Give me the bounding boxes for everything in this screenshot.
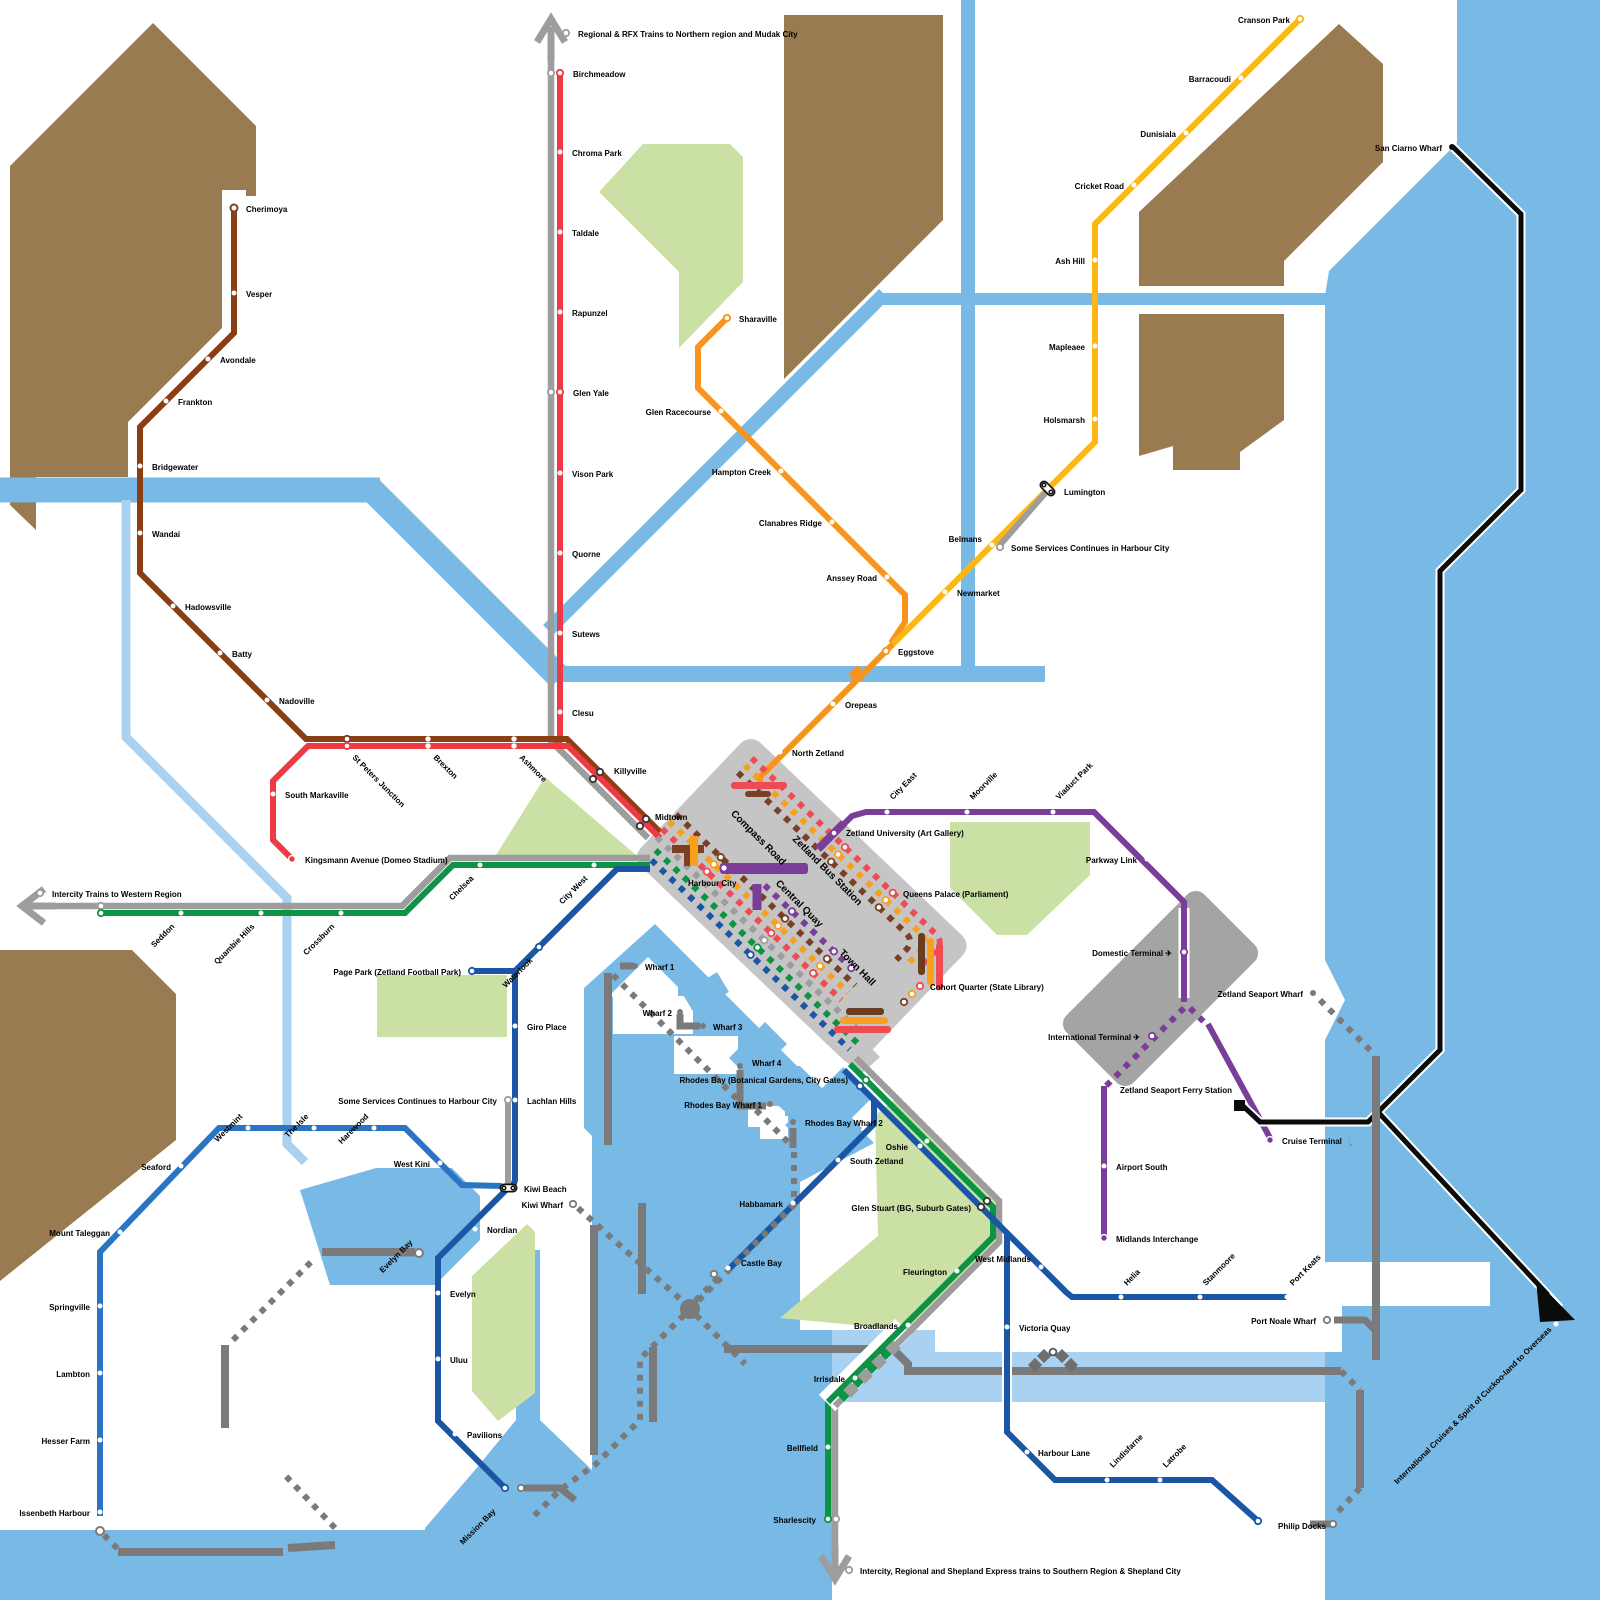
svg-text:Oshie: Oshie: [886, 1143, 909, 1152]
svg-text:Chroma Park: Chroma Park: [572, 149, 622, 158]
svg-text:Philip Docks: Philip Docks: [1278, 1522, 1327, 1531]
svg-text:Rapunzel: Rapunzel: [572, 309, 608, 318]
svg-text:Belmans: Belmans: [949, 535, 983, 544]
svg-text:Cruise Terminal ⚓: Cruise Terminal ⚓: [1282, 1136, 1354, 1146]
svg-text:Eggstove: Eggstove: [898, 648, 935, 657]
svg-text:Issenbeth Harbour: Issenbeth Harbour: [19, 1509, 90, 1518]
svg-text:Regional & RFX Trains to North: Regional & RFX Trains to Northern region…: [578, 30, 798, 39]
svg-text:Taldale: Taldale: [572, 229, 600, 238]
svg-text:Mapleaee: Mapleaee: [1049, 343, 1086, 352]
svg-text:West Kini: West Kini: [394, 1160, 430, 1169]
svg-text:Parkway Link: Parkway Link: [1086, 856, 1138, 865]
svg-text:Anssey Road: Anssey Road: [826, 574, 877, 583]
svg-text:Lumington: Lumington: [1064, 488, 1105, 497]
svg-text:Wharf 4: Wharf 4: [752, 1059, 782, 1068]
svg-text:Evelyn: Evelyn: [450, 1290, 476, 1299]
svg-text:Intercity, Regional and Shepla: Intercity, Regional and Shepland Express…: [860, 1567, 1181, 1576]
svg-text:Wharf 2: Wharf 2: [643, 1009, 673, 1018]
svg-text:Page Park (Zetland Football Pa: Page Park (Zetland Football Park): [333, 968, 461, 977]
svg-text:Wharf 3: Wharf 3: [713, 1023, 743, 1032]
svg-text:Kingsmann Avenue (Domeo Stadiu: Kingsmann Avenue (Domeo Stadium): [305, 856, 448, 865]
svg-text:Zetland Seaport Ferry Station: Zetland Seaport Ferry Station: [1120, 1086, 1232, 1095]
svg-text:Seaford: Seaford: [141, 1163, 171, 1172]
svg-text:Midlands Interchange: Midlands Interchange: [1116, 1235, 1199, 1244]
svg-text:San Ciarno Wharf: San Ciarno Wharf: [1375, 144, 1442, 153]
svg-text:Airport South: Airport South: [1116, 1163, 1168, 1172]
svg-text:Sharlescity: Sharlescity: [773, 1516, 816, 1525]
svg-text:Sutews: Sutews: [572, 630, 601, 639]
svg-text:Holsmarsh: Holsmarsh: [1044, 416, 1085, 425]
svg-text:International Terminal ✈: International Terminal ✈: [1048, 1033, 1140, 1042]
svg-text:Giro Place: Giro Place: [527, 1023, 567, 1032]
svg-text:Hadowsville: Hadowsville: [185, 603, 232, 612]
svg-text:Barracoudi: Barracoudi: [1189, 75, 1231, 84]
svg-text:Queens Palace (Parliament): Queens Palace (Parliament): [903, 890, 1009, 899]
svg-text:Wandai: Wandai: [152, 530, 180, 539]
svg-text:West Midlands: West Midlands: [975, 1255, 1031, 1264]
svg-text:Uluu: Uluu: [450, 1356, 468, 1365]
svg-text:South Markaville: South Markaville: [285, 791, 349, 800]
svg-text:Habbamark: Habbamark: [739, 1200, 783, 1209]
svg-text:Vison Park: Vison Park: [572, 470, 614, 479]
svg-text:Kiwi Beach: Kiwi Beach: [524, 1185, 567, 1194]
svg-text:Midtown: Midtown: [655, 813, 688, 822]
svg-text:Orepeas: Orepeas: [845, 701, 878, 710]
svg-text:Some Services Continues in Har: Some Services Continues in Harbour City: [1011, 544, 1170, 553]
svg-text:Clesu: Clesu: [572, 709, 594, 718]
svg-text:Quorne: Quorne: [572, 550, 601, 559]
svg-text:Lachlan Hills: Lachlan Hills: [527, 1097, 577, 1106]
svg-text:Cranson Park: Cranson Park: [1238, 16, 1291, 25]
svg-text:Rhodes Bay (Botanical Gardens,: Rhodes Bay (Botanical Gardens, City Gate…: [680, 1076, 849, 1085]
svg-text:Glen Stuart (BG, Suburb Gates): Glen Stuart (BG, Suburb Gates): [851, 1204, 971, 1213]
svg-text:South Zetland: South Zetland: [850, 1157, 903, 1166]
svg-text:Newmarket: Newmarket: [957, 589, 1000, 598]
svg-text:Broadlands: Broadlands: [854, 1322, 899, 1331]
svg-text:Vesper: Vesper: [246, 290, 272, 299]
svg-text:Glen Racecourse: Glen Racecourse: [646, 408, 712, 417]
svg-text:Killyville: Killyville: [614, 767, 647, 776]
svg-text:Harbour City: Harbour City: [688, 879, 737, 888]
svg-text:Harbour Lane: Harbour Lane: [1038, 1449, 1091, 1458]
svg-text:Irrisdale: Irrisdale: [814, 1375, 846, 1384]
svg-text:Dunisiala: Dunisiala: [1140, 130, 1176, 139]
svg-text:Hesser Farm: Hesser Farm: [42, 1437, 90, 1446]
svg-text:Victoria Quay: Victoria Quay: [1019, 1324, 1071, 1333]
svg-text:Pavilions: Pavilions: [467, 1431, 503, 1440]
svg-text:Rhodes Bay Wharf 1: Rhodes Bay Wharf 1: [684, 1101, 762, 1110]
svg-text:Clanabres Ridge: Clanabres Ridge: [759, 519, 823, 528]
svg-text:Cricket Road: Cricket Road: [1075, 182, 1124, 191]
svg-text:Castle Bay: Castle Bay: [741, 1259, 782, 1268]
svg-text:Fleurington: Fleurington: [903, 1268, 947, 1277]
svg-text:Intercity Trains to Western Re: Intercity Trains to Western Region: [52, 890, 182, 899]
svg-text:Avondale: Avondale: [220, 356, 256, 365]
svg-text:Zetland Seaport Wharf: Zetland Seaport Wharf: [1218, 990, 1304, 999]
svg-text:Domestic Terminal ✈: Domestic Terminal ✈: [1092, 949, 1172, 958]
svg-text:Glen Yale: Glen Yale: [573, 389, 609, 398]
svg-text:Nadoville: Nadoville: [279, 697, 315, 706]
svg-text:Cherimoya: Cherimoya: [246, 205, 288, 214]
svg-text:Sharaville: Sharaville: [739, 315, 777, 324]
svg-text:Hampton Creek: Hampton Creek: [712, 468, 772, 477]
svg-text:Birchmeadow: Birchmeadow: [573, 70, 626, 79]
svg-text:Batty: Batty: [232, 650, 253, 659]
svg-text:Lambton: Lambton: [56, 1370, 90, 1379]
svg-text:Nordian: Nordian: [487, 1226, 517, 1235]
svg-text:Wharf 1: Wharf 1: [645, 963, 675, 972]
svg-text:Zetland University (Art Galler: Zetland University (Art Gallery): [846, 829, 964, 838]
svg-text:North Zetland: North Zetland: [792, 749, 844, 758]
svg-text:Rhodes Bay Wharf 2: Rhodes Bay Wharf 2: [805, 1119, 883, 1128]
svg-text:Mount Taleggan: Mount Taleggan: [49, 1229, 110, 1238]
svg-text:Bellfield: Bellfield: [787, 1444, 818, 1453]
svg-text:Some Services Continues to Har: Some Services Continues to Harbour City: [338, 1097, 497, 1106]
svg-text:Bridgewater: Bridgewater: [152, 463, 198, 472]
svg-text:Kiwi Wharf: Kiwi Wharf: [522, 1201, 564, 1210]
svg-text:Cohort Quarter (State Library): Cohort Quarter (State Library): [930, 983, 1044, 992]
svg-text:Port Noale Wharf: Port Noale Wharf: [1251, 1317, 1316, 1326]
svg-text:Ash Hill: Ash Hill: [1055, 257, 1085, 266]
svg-text:Frankton: Frankton: [178, 398, 212, 407]
svg-text:Springville: Springville: [49, 1303, 90, 1312]
